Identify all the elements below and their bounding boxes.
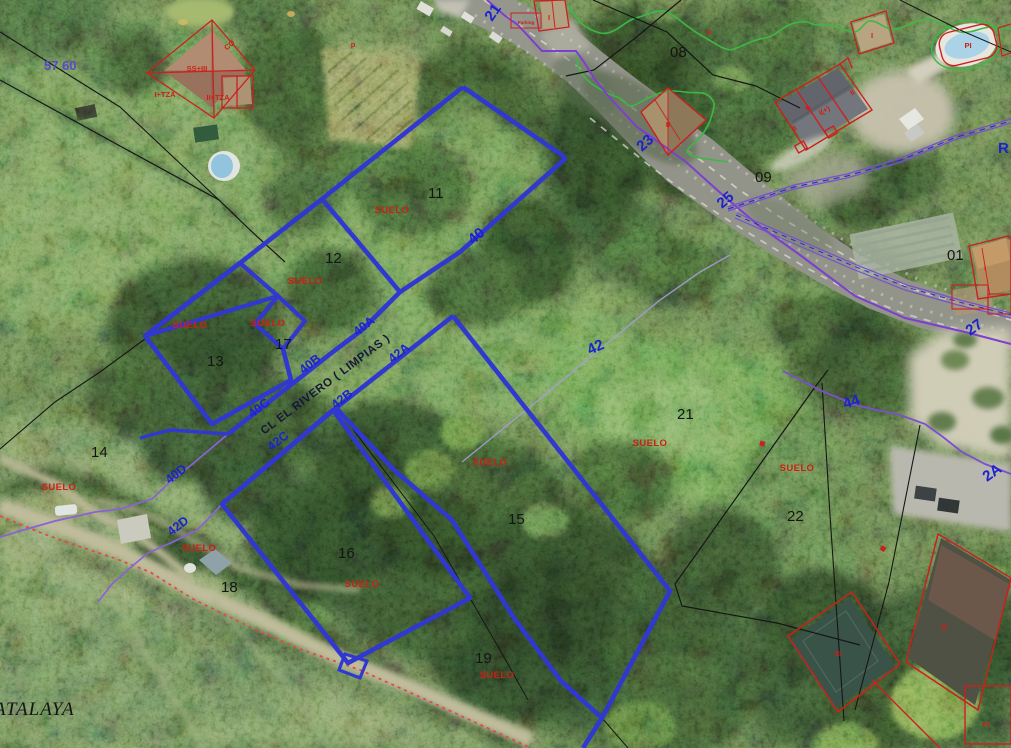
svg-text:I: I bbox=[871, 31, 873, 40]
svg-text:SUELO: SUELO bbox=[473, 457, 508, 468]
svg-text:11: 11 bbox=[428, 185, 444, 202]
svg-text:SS+III: SS+III bbox=[187, 64, 208, 73]
svg-text:PI: PI bbox=[964, 41, 971, 50]
svg-text:III: III bbox=[835, 649, 841, 658]
svg-text:SUELO: SUELO bbox=[345, 579, 380, 590]
svg-text:II+TZA: II+TZA bbox=[206, 93, 230, 102]
svg-text:18: 18 bbox=[221, 579, 238, 596]
svg-text:01: 01 bbox=[947, 247, 964, 264]
svg-text:I: I bbox=[548, 13, 550, 22]
svg-text:PI: PI bbox=[982, 720, 989, 729]
svg-text:21: 21 bbox=[677, 406, 694, 423]
svg-text:SUELO: SUELO bbox=[780, 463, 815, 474]
svg-text:14: 14 bbox=[91, 444, 108, 461]
svg-text:p: p bbox=[707, 27, 712, 36]
svg-text:I: I bbox=[984, 263, 986, 272]
svg-text:13: 13 bbox=[207, 353, 224, 370]
svg-text:I+TZA: I+TZA bbox=[154, 90, 176, 99]
svg-text:15: 15 bbox=[508, 511, 525, 528]
svg-text:III: III bbox=[941, 623, 947, 632]
svg-text:SUELO: SUELO bbox=[182, 543, 217, 554]
svg-text:SUELO: SUELO bbox=[480, 670, 515, 681]
svg-text:SUELO: SUELO bbox=[288, 276, 323, 287]
svg-text:16: 16 bbox=[338, 545, 355, 562]
svg-text:SUELO: SUELO bbox=[251, 318, 286, 329]
svg-text:22: 22 bbox=[787, 508, 804, 525]
svg-text:08: 08 bbox=[670, 44, 687, 61]
svg-text:p: p bbox=[351, 40, 356, 49]
svg-text:SUELO: SUELO bbox=[42, 482, 77, 493]
svg-text:12: 12 bbox=[325, 250, 342, 267]
svg-text:ATALAYA: ATALAYA bbox=[0, 699, 75, 720]
svg-text:57 60: 57 60 bbox=[44, 58, 77, 73]
svg-text:09: 09 bbox=[755, 169, 772, 186]
svg-text:19: 19 bbox=[475, 650, 492, 667]
svg-text:SUELO: SUELO bbox=[173, 320, 208, 331]
svg-text:SUELO: SUELO bbox=[633, 438, 668, 449]
svg-text:SUELO: SUELO bbox=[375, 205, 410, 216]
svg-text:17: 17 bbox=[275, 336, 292, 353]
svg-text:II: II bbox=[666, 120, 670, 129]
svg-text:R: R bbox=[998, 140, 1009, 157]
svg-text:Parking: Parking bbox=[518, 20, 535, 25]
